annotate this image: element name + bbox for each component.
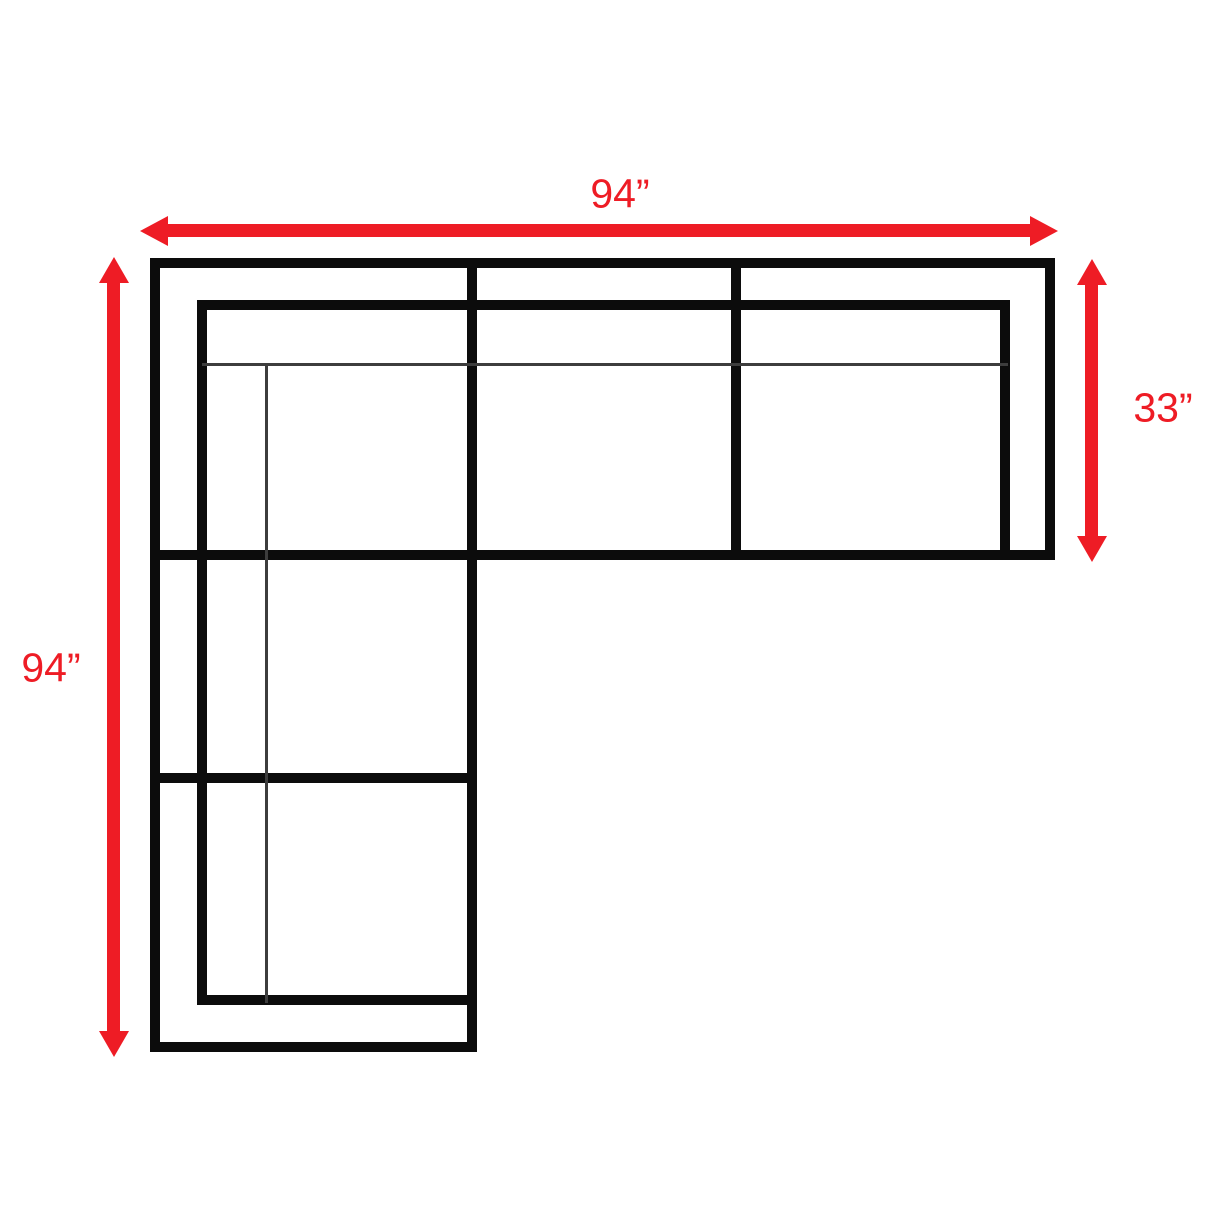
sofa-outer-left-edge (150, 258, 160, 1052)
arrow-shaft (1085, 281, 1098, 540)
seat-back-cushion-line-vertical (265, 363, 268, 1003)
width-dimension-label: 94” (590, 174, 649, 215)
sofa-chaise-seat-divider (150, 773, 477, 783)
sofa-leg-outer-bottom-edge (150, 1042, 477, 1052)
height-dimension-arrow (99, 257, 129, 1057)
arrowhead-down-icon (99, 1031, 129, 1057)
arrow-shaft (107, 279, 120, 1035)
height-dimension-label: 94” (21, 648, 80, 689)
width-dimension-arrow (140, 216, 1058, 246)
sofa-leg-right-edge (467, 258, 477, 1052)
sofa-inner-frame-left (197, 300, 207, 1005)
sofa-dimension-diagram: 94” 94” 33” (0, 0, 1214, 1214)
seat-back-cushion-line-horizontal (202, 363, 1008, 366)
sofa-inner-frame-right (1000, 300, 1010, 560)
sofa-leg-inner-bottom-edge (197, 995, 477, 1005)
arrowhead-right-icon (1030, 216, 1058, 246)
sofa-outer-right-edge (1045, 258, 1055, 560)
sofa-outer-top-edge (150, 258, 1055, 268)
arrowhead-down-icon (1077, 536, 1107, 562)
depth-dimension-arrow (1077, 259, 1107, 562)
depth-dimension-label: 33” (1133, 388, 1192, 429)
sofa-top-section-bottom-edge (150, 550, 1055, 560)
arrow-shaft (164, 224, 1034, 237)
sofa-inner-frame-top (197, 300, 1010, 310)
